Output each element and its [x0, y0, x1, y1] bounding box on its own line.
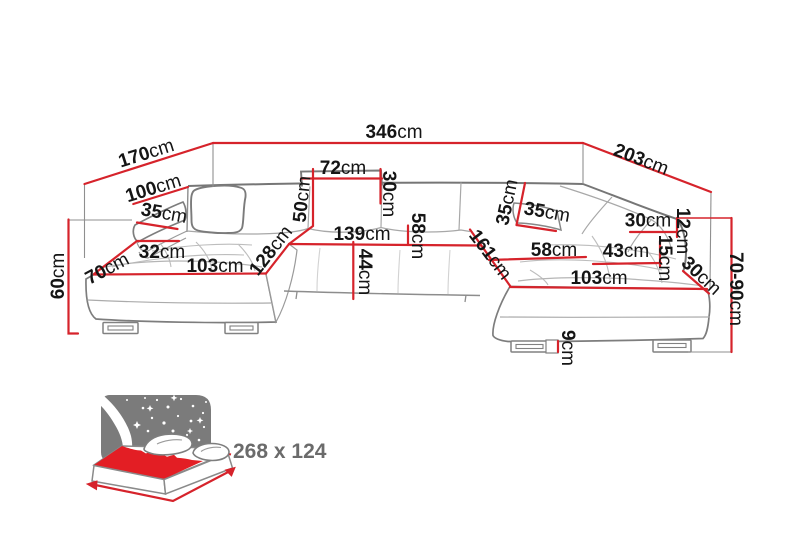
- svg-text:60cm: 60cm: [48, 253, 69, 299]
- svg-text:15cm: 15cm: [654, 235, 675, 281]
- svg-text:58cm: 58cm: [407, 213, 428, 259]
- svg-text:9cm: 9cm: [557, 330, 578, 366]
- svg-text:346cm: 346cm: [365, 122, 422, 143]
- svg-text:139cm: 139cm: [333, 224, 390, 245]
- svg-text:103cm: 103cm: [570, 268, 627, 289]
- svg-text:30cm: 30cm: [378, 171, 399, 217]
- svg-text:58cm: 58cm: [531, 240, 577, 261]
- svg-text:43cm: 43cm: [603, 241, 649, 262]
- svg-text:32cm: 32cm: [139, 242, 185, 263]
- svg-text:70-90cm: 70-90cm: [725, 252, 746, 326]
- svg-text:30cm: 30cm: [625, 211, 671, 232]
- svg-text:268 x 124: 268 x 124: [233, 440, 327, 463]
- svg-text:103cm: 103cm: [186, 256, 243, 277]
- svg-text:44cm: 44cm: [354, 249, 375, 295]
- svg-text:72cm: 72cm: [320, 158, 366, 179]
